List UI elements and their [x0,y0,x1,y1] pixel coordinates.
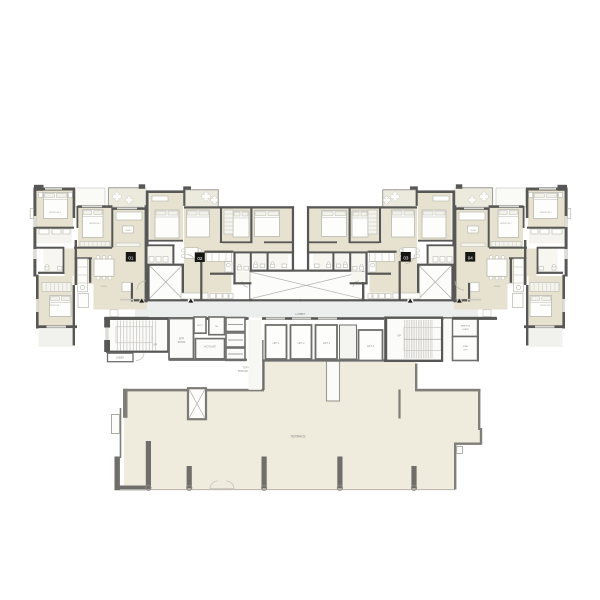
svg-text:ROOM: ROOM [178,341,185,344]
svg-text:01: 01 [128,255,134,260]
svg-text:02: 02 [197,256,203,261]
svg-text:LOBBY: LOBBY [116,357,125,360]
svg-text:LIFT 4: LIFT 4 [367,345,375,348]
svg-text:LIFT 3: LIFT 3 [323,342,331,345]
svg-text:UP: UP [153,343,157,347]
svg-text:LIVING: LIVING [125,230,132,232]
svg-text:04: 04 [468,255,474,260]
svg-text:BEDROOM 2: BEDROOM 2 [500,223,511,225]
svg-text:UP: UP [397,334,401,338]
svg-text:A/C PLANT: A/C PLANT [204,346,216,349]
svg-text:03: 03 [403,255,409,260]
svg-text:LIFT: LIFT [463,349,468,351]
svg-text:BEDROOM 1: BEDROOM 1 [49,305,60,307]
svg-text:DUCT: DUCT [197,325,204,327]
svg-text:LIFT 1: LIFT 1 [273,342,281,345]
svg-text:BEDROOM 3: BEDROOM 3 [540,212,551,214]
svg-text:BEDROOM 1: BEDROOM 1 [540,305,551,307]
svg-text:SERVICE: SERVICE [461,326,471,328]
svg-text:DINING: DINING [101,286,108,288]
svg-text:BEDROOM 3: BEDROOM 3 [49,212,60,214]
svg-text:LIVING: LIVING [470,230,477,232]
svg-text:TERRACE: TERRACE [290,435,305,439]
svg-text:FIRE: FIRE [463,346,469,348]
svg-text:DINING: DINING [494,286,501,288]
svg-text:LOBBY: LOBBY [295,312,305,316]
svg-text:LOBBY: LOBBY [462,329,470,331]
svg-text:LIFT 2: LIFT 2 [298,342,306,345]
svg-text:BEDROOM 2: BEDROOM 2 [89,223,100,225]
